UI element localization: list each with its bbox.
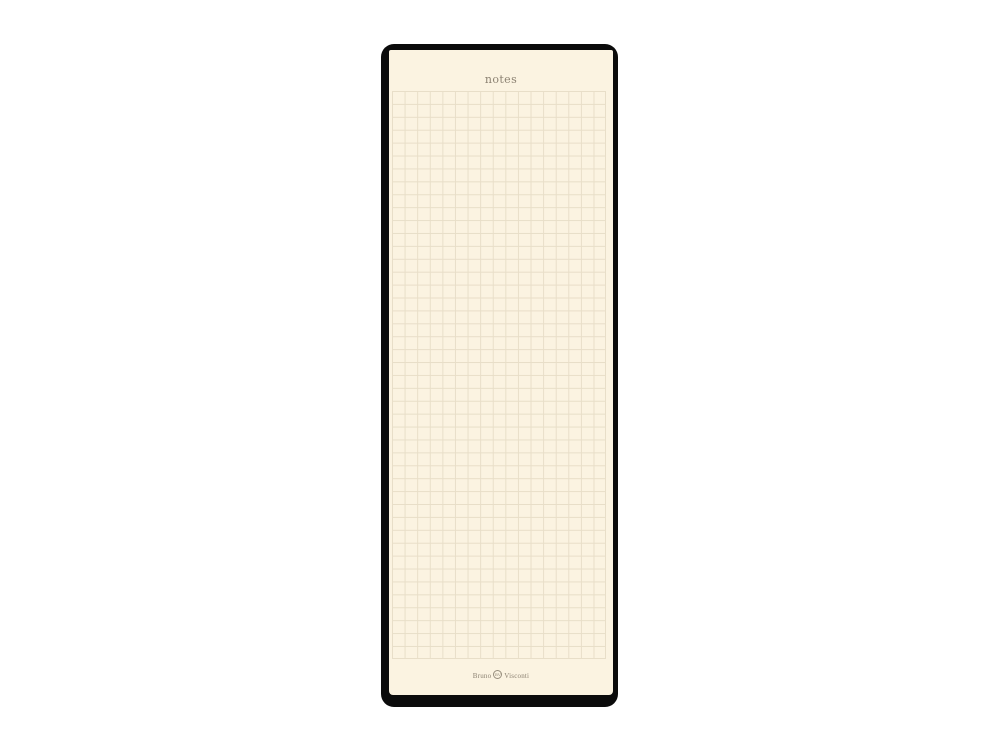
brand-word-second: Visconti [504,671,529,681]
photo-background: notes Bruno BV Visconti [0,0,1000,750]
notepad-cover-frame: notes Bruno BV Visconti [381,44,618,707]
paper-header: notes [389,50,613,91]
brand-word-first: Bruno [473,671,492,681]
squared-grid-area [392,91,606,659]
notepad-paper-sheet: notes Bruno BV Visconti [389,50,613,695]
brand-crest-icon: BV [493,670,502,679]
notes-header-label: notes [485,74,517,85]
brand-logo: Bruno BV Visconti [389,670,613,681]
